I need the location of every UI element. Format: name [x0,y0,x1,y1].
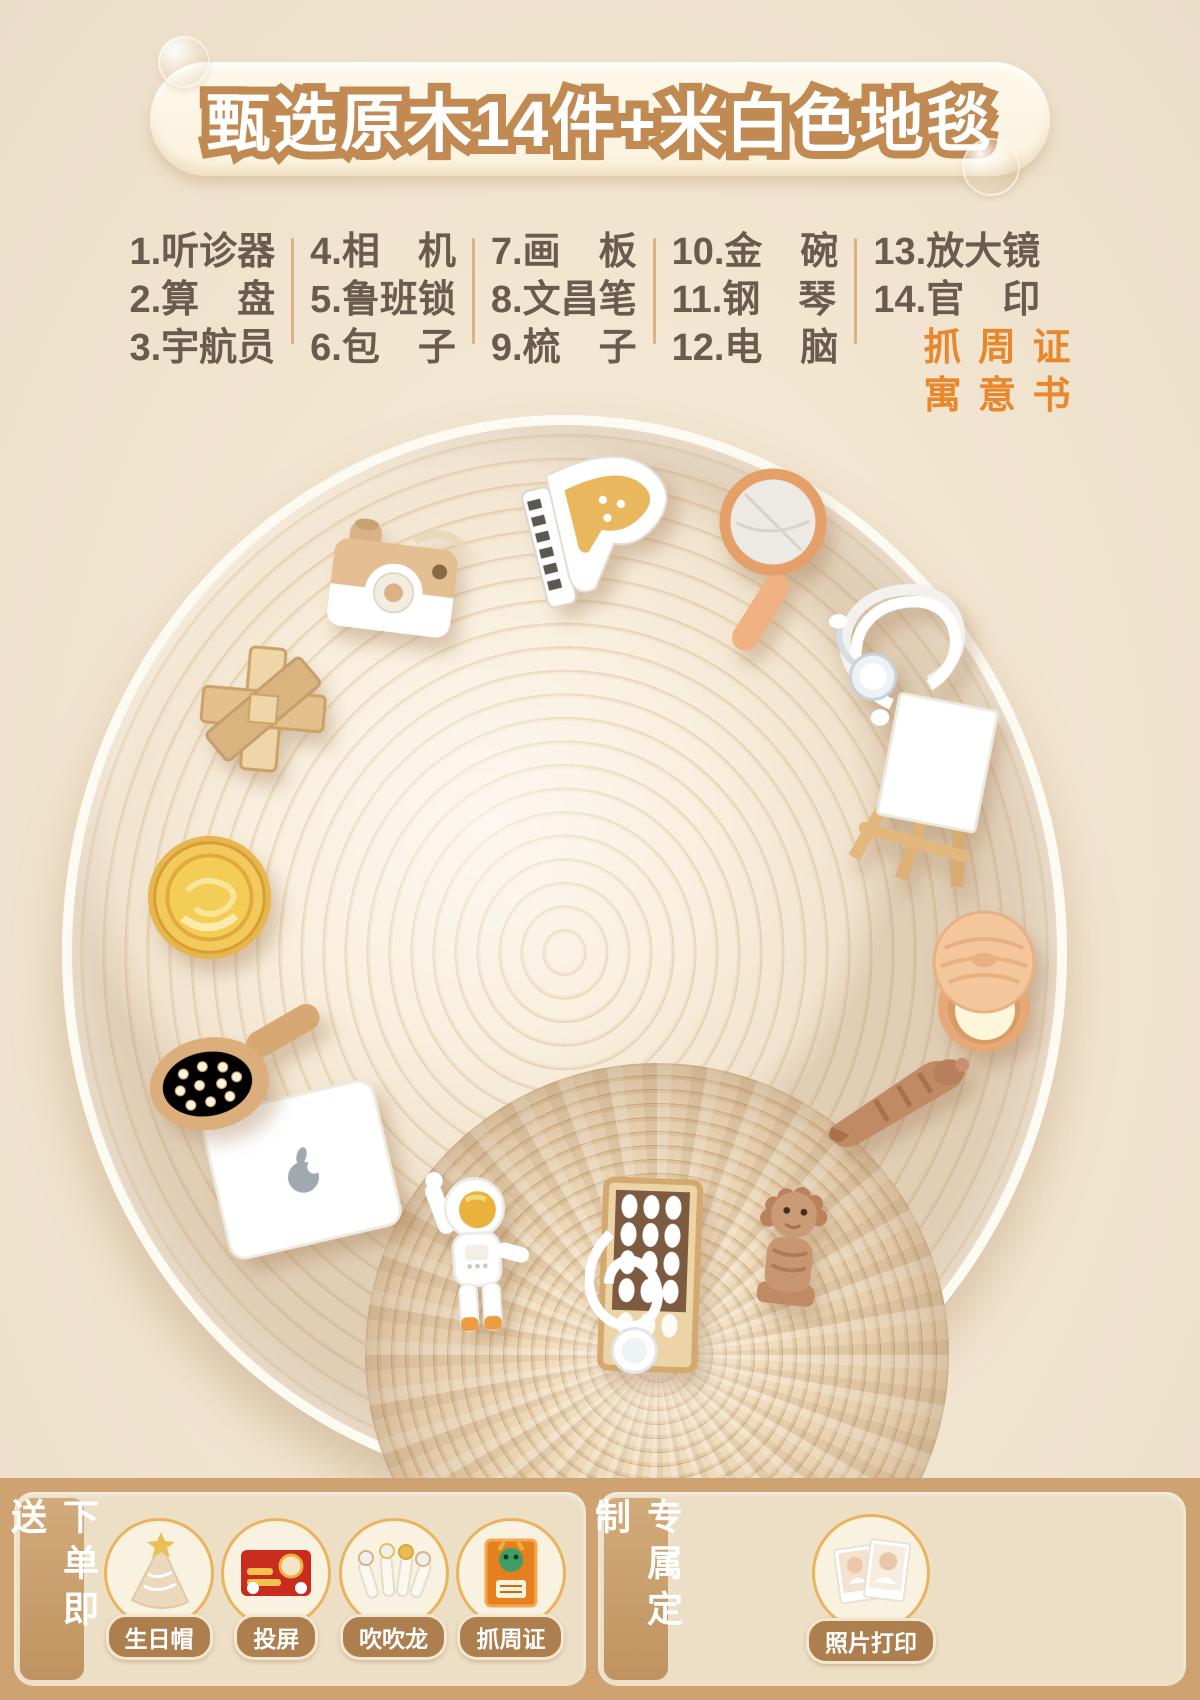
list-item: 1.听诊器 [129,228,275,276]
item-list-column-4: 10.金 碗 11.钢 琴 12.电 脑 [672,228,839,420]
gift-projection: 投屏 [221,1518,331,1660]
lion-seal-icon [726,1172,855,1323]
birthday-hat-icon [104,1518,214,1628]
page-title: 甄选原木14件+米白色地毯 [150,62,1050,176]
free-gifts-panel: 下单即送 生日帽 [14,1492,586,1686]
wenchang-brush-icon [809,1024,981,1165]
projection-card-icon [221,1518,331,1628]
item-list-column-5: 13.放大镜 14.官 印 抓 周 证 寓 意 书 [873,228,1070,420]
custom-panel: 专属定制 [598,1492,1186,1686]
gift-label: 投屏 [234,1614,318,1660]
astronaut-icon [413,1162,541,1353]
gift-label: 生日帽 [106,1614,213,1660]
list-item: 10.金 碗 [672,228,839,276]
list-item: 3.宇航员 [129,324,275,372]
list-divider [291,238,294,344]
gift-certificate: 抓周证 [456,1518,566,1660]
photo-prints-icon [812,1514,930,1632]
bubble-decoration [158,36,210,88]
party-blowers-icon [339,1518,449,1628]
custom-row: 照片打印 [676,1492,1178,1686]
wooden-camera-icon [310,503,476,660]
gift-label: 吹吹龙 [340,1614,447,1660]
item-list: 1.听诊器 2.算 盘 3.宇航员 4.相 机 5.鲁班锁 6.包 子 7.画 … [0,228,1200,420]
item-list-column-2: 4.相 机 5.鲁班锁 6.包 子 [310,228,456,420]
list-item: 5.鲁班锁 [310,276,456,324]
list-item: 7.画 板 [491,228,637,276]
item-list-column-1: 1.听诊器 2.算 盘 3.宇航员 [129,228,275,420]
list-item: 9.梳 子 [491,324,637,372]
zhuazhou-certificate-icon [456,1518,566,1628]
list-item-highlight: 抓 周 证 [873,324,1070,372]
list-divider [472,238,475,344]
list-item: 12.电 脑 [672,324,839,372]
gift-birthday-hat: 生日帽 [104,1518,214,1660]
luban-lock-icon [188,634,338,788]
list-item: 11.钢 琴 [672,276,839,324]
gift-label: 照片打印 [806,1618,936,1664]
list-item-highlight: 寓 意 书 [873,372,1070,420]
title-banner: 甄选原木14件+米白色地毯 甄选原木14件+米白色地毯 [150,62,1050,176]
product-poster: 甄选原木14件+米白色地毯 甄选原木14件+米白色地毯 1.听诊器 2.算 盘 … [0,0,1200,1700]
gift-party-blowers: 吹吹龙 [339,1518,449,1660]
bubble-decoration [962,138,1020,196]
gold-bowl-icon [144,832,276,969]
free-gifts-tab: 下单即送 [20,1498,84,1680]
list-item: 4.相 机 [310,228,456,276]
list-item: 6.包 子 [310,324,456,372]
free-gifts-row: 生日帽 投屏 [92,1492,578,1686]
list-item: 13.放大镜 [873,228,1070,276]
list-item: 2.算 盘 [129,276,275,324]
list-item: 8.文昌笔 [491,276,637,324]
custom-tab: 专属定制 [604,1498,668,1680]
list-divider [653,238,656,344]
abacus-icon [581,1173,718,1382]
gift-photo-prints: 照片打印 [806,1514,936,1664]
item-list-column-3: 7.画 板 8.文昌笔 9.梳 子 [491,228,637,420]
list-item: 14.官 印 [873,276,1070,324]
list-divider [854,238,857,344]
gift-label: 抓周证 [457,1614,564,1660]
